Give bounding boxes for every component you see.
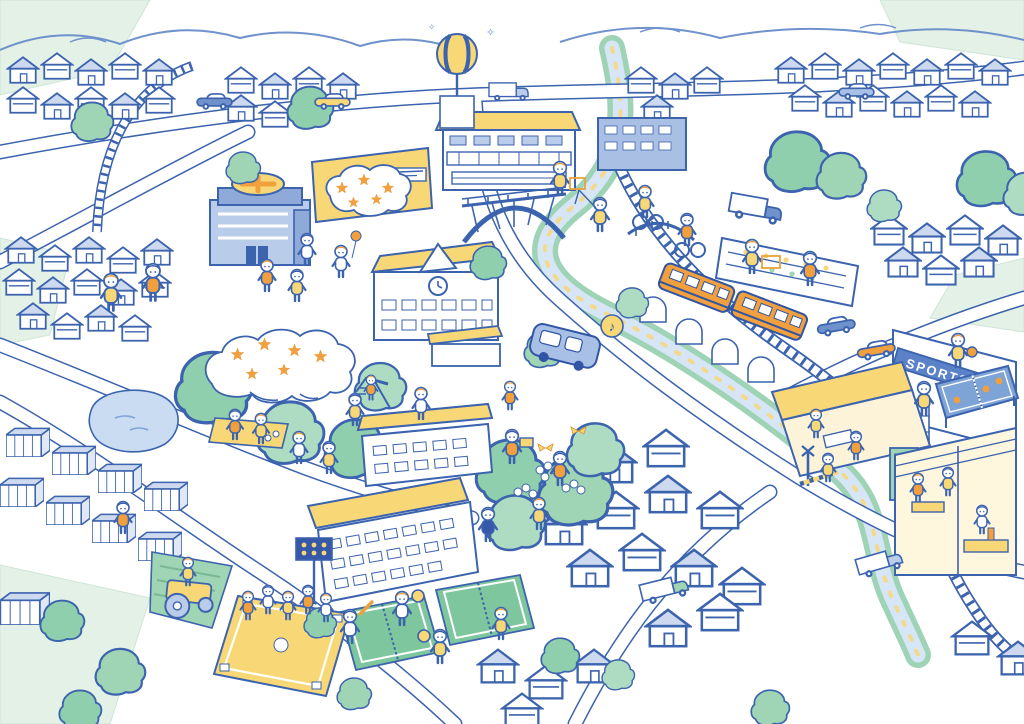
- house: [926, 85, 957, 110]
- house: [810, 53, 841, 78]
- sparkle-icon: ✧: [428, 22, 436, 32]
- toy-balloon: [351, 231, 361, 241]
- house: [986, 225, 1021, 254]
- tree: [355, 363, 407, 410]
- person-waving: [502, 381, 517, 409]
- tree: [751, 690, 789, 724]
- house: [646, 476, 690, 512]
- tree: [226, 152, 260, 184]
- person: [289, 270, 306, 302]
- tree: [470, 246, 506, 279]
- house: [844, 59, 875, 84]
- town-map-illustration: ✧ ✧: [0, 0, 1024, 724]
- warehouse: [98, 464, 142, 493]
- person: [333, 246, 350, 278]
- house: [42, 93, 73, 118]
- house: [260, 73, 291, 98]
- tree: [541, 638, 579, 673]
- house: [698, 492, 742, 528]
- tree: [867, 190, 901, 222]
- house: [110, 93, 141, 118]
- truck: [728, 193, 784, 226]
- tennis-racket: [412, 590, 424, 602]
- camera: [520, 438, 533, 447]
- warehouse: [6, 428, 50, 457]
- house: [644, 430, 688, 466]
- warehouse: [52, 446, 96, 475]
- shopping-building: [312, 148, 432, 222]
- house: [108, 247, 139, 272]
- house: [776, 57, 807, 82]
- car: [816, 315, 856, 338]
- blossom-cloud: [206, 330, 355, 403]
- paddle: [967, 347, 977, 357]
- tree: [71, 102, 113, 141]
- cafe: [895, 428, 1016, 575]
- tree: [817, 153, 867, 199]
- tree: [602, 660, 634, 690]
- house: [120, 315, 151, 340]
- music-note-icon: ♪: [609, 319, 616, 334]
- house: [878, 53, 909, 78]
- warehouse: [46, 496, 90, 525]
- house: [74, 237, 105, 262]
- house: [910, 223, 945, 252]
- house: [144, 59, 175, 84]
- tennis-racket: [418, 630, 430, 642]
- house: [72, 269, 103, 294]
- sparkle-icon: ✧: [486, 27, 495, 39]
- music-bubble: ♪: [601, 315, 623, 337]
- person-tennis: [431, 630, 449, 663]
- pond: [89, 390, 178, 452]
- tree: [337, 678, 371, 710]
- warehouse: [144, 482, 188, 511]
- house: [672, 550, 716, 586]
- house: [692, 67, 723, 92]
- mountain-ridge: [0, 25, 1024, 51]
- house: [892, 91, 923, 116]
- house: [226, 67, 257, 92]
- house: [620, 534, 664, 570]
- house: [646, 610, 690, 646]
- office-building: [598, 118, 686, 170]
- house: [568, 550, 612, 586]
- person: [259, 260, 276, 292]
- tree: [616, 288, 648, 318]
- house: [626, 67, 657, 92]
- house: [960, 91, 991, 116]
- house: [660, 73, 691, 98]
- hospital: [210, 173, 310, 265]
- house: [52, 313, 83, 338]
- house: [946, 53, 977, 78]
- warehouse: [0, 478, 44, 507]
- house: [86, 305, 117, 330]
- house: [478, 650, 517, 683]
- house: [142, 239, 173, 264]
- house: [924, 255, 959, 284]
- house: [912, 59, 943, 84]
- house: [948, 215, 983, 244]
- tree: [96, 649, 146, 695]
- person-fishing: [591, 198, 609, 231]
